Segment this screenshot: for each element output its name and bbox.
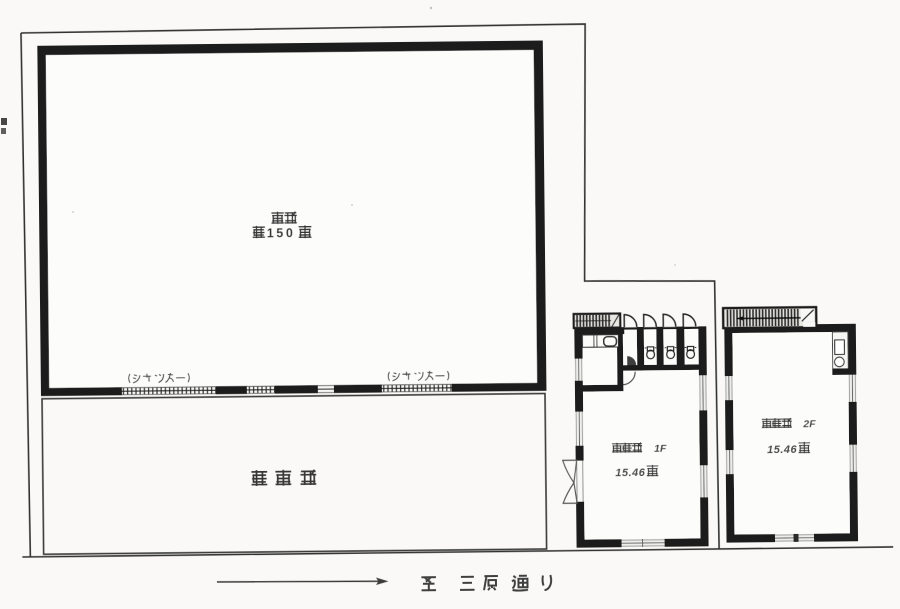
svg-text:1F: 1F <box>654 443 667 455</box>
svg-text:15.46: 15.46 <box>767 444 798 456</box>
svg-text:2F: 2F <box>802 418 816 430</box>
svg-text:15.46: 15.46 <box>615 467 646 479</box>
svg-text:150: 150 <box>267 226 296 240</box>
